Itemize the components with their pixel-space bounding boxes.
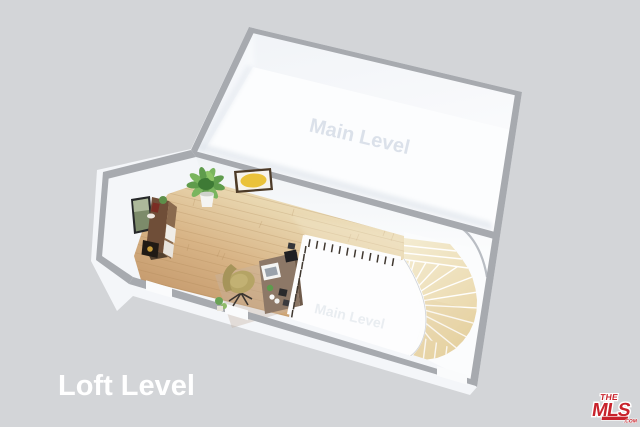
svg-text:.COM: .COM (623, 419, 637, 425)
svg-text:Loft Level: Loft Level (58, 370, 195, 402)
